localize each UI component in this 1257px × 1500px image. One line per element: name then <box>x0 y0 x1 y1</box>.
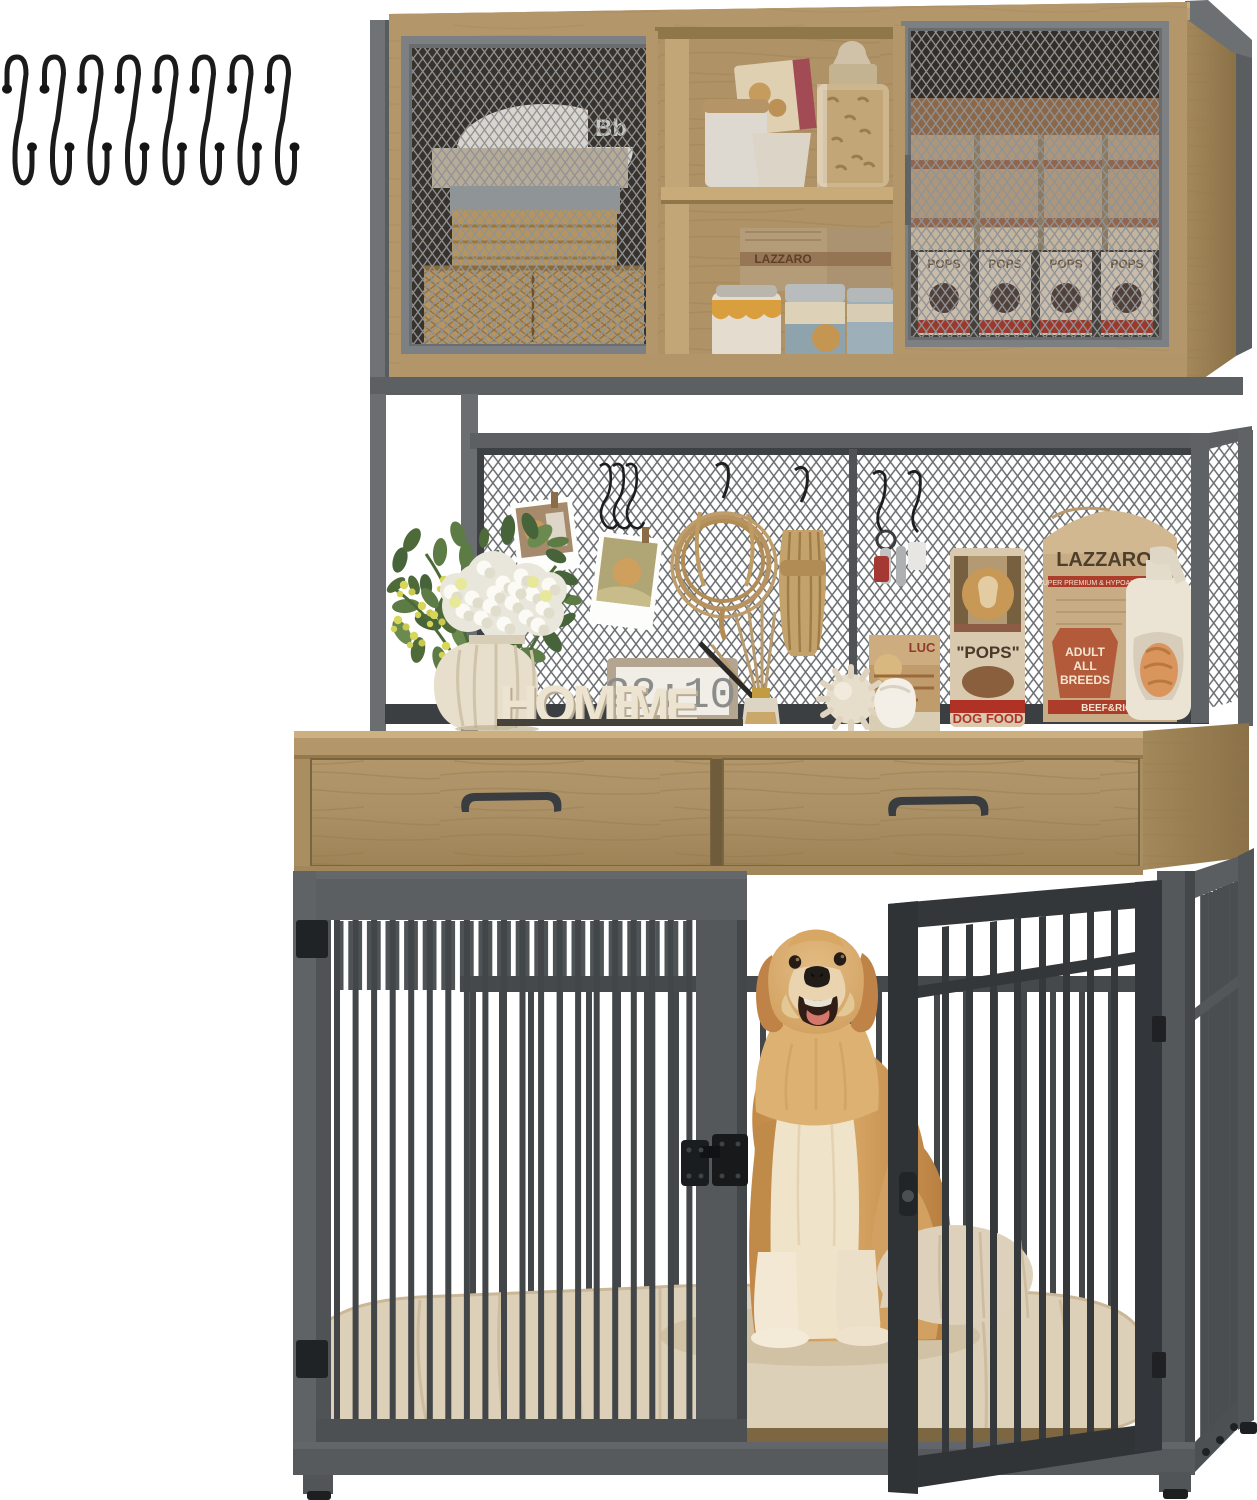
svg-text:BREEDS: BREEDS <box>1060 673 1110 687</box>
svg-text:ALL: ALL <box>1073 659 1096 673</box>
svg-text:DOG FOOD: DOG FOOD <box>953 711 1024 726</box>
svg-text:LAZZARO: LAZZARO <box>1056 549 1152 571</box>
svg-text:ADULT: ADULT <box>1065 645 1105 659</box>
svg-text:"POPS": "POPS" <box>956 643 1019 662</box>
svg-text:LAZZARO: LAZZARO <box>754 252 811 266</box>
svg-text:LUC: LUC <box>909 640 936 655</box>
